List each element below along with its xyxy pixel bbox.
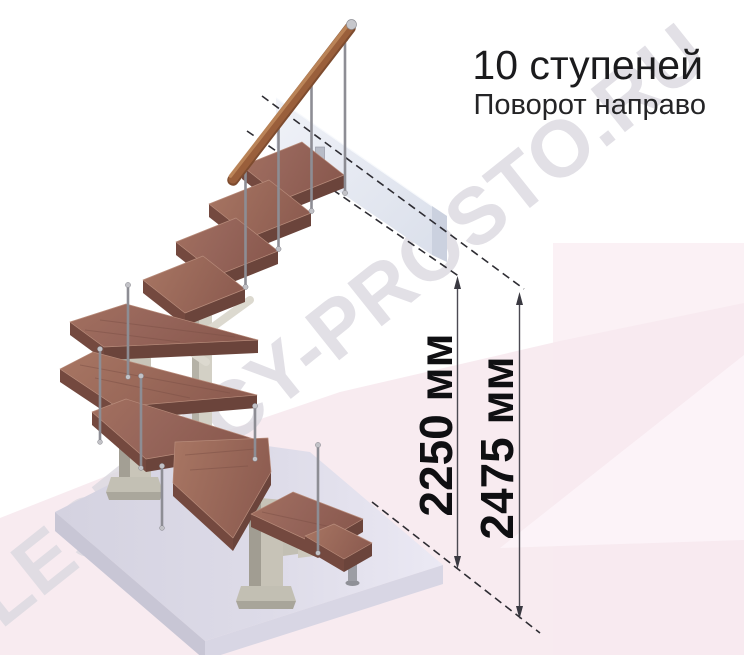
dimension-label-2475: 2475 мм — [471, 356, 523, 539]
dimension-label-2250: 2250 мм — [410, 333, 462, 516]
dimension-label-2250-text: 2250 мм — [410, 333, 462, 516]
staircase-diagram: LESTNICY-PROSTO.RU — [0, 0, 744, 655]
page-subtitle: Поворот направо — [474, 89, 706, 121]
handrail-end-cap — [347, 20, 357, 30]
page-title: 10 ступеней — [472, 42, 703, 88]
dimension-label-2475-text: 2475 мм — [471, 356, 523, 539]
